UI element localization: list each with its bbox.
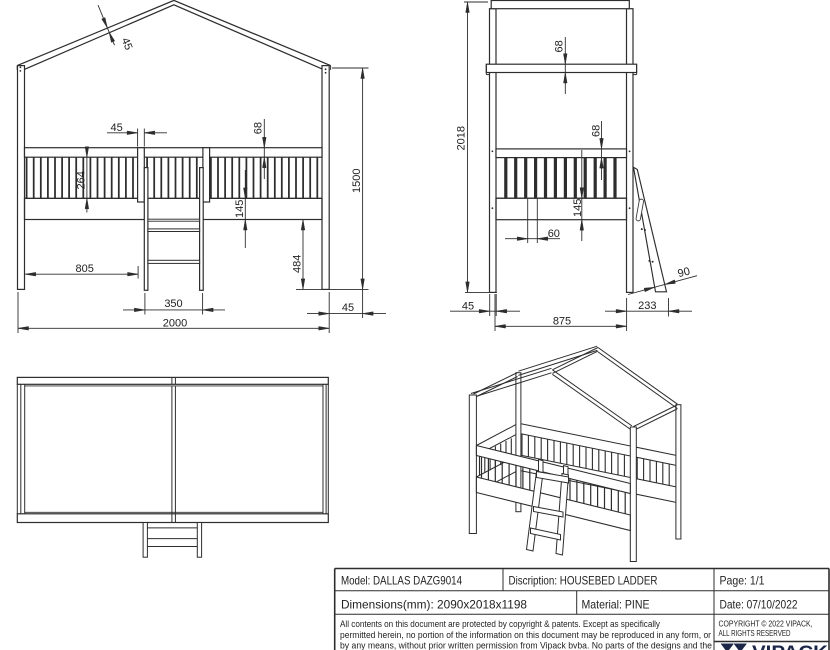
svg-text:VIPACK: VIPACK: [752, 643, 828, 650]
svg-text:45: 45: [462, 301, 474, 313]
svg-text:45: 45: [111, 122, 123, 134]
svg-text:1500: 1500: [351, 169, 363, 193]
svg-text:805: 805: [76, 263, 94, 275]
svg-text:by any means, without prior wr: by any means, without prior written perm…: [340, 640, 712, 650]
svg-text:Date: 07/10/2022: Date: 07/10/2022: [720, 598, 798, 612]
svg-text:All contents on this document: All contents on this document are protec…: [340, 619, 660, 629]
svg-text:Discription: HOUSEBED LADDER: Discription: HOUSEBED LADDER: [509, 574, 658, 588]
svg-text:145: 145: [234, 200, 246, 218]
svg-text:COPYRIGHT © 2022 VIPACK,: COPYRIGHT © 2022 VIPACK,: [719, 619, 813, 628]
svg-text:60: 60: [548, 228, 560, 240]
svg-text:68: 68: [554, 40, 566, 52]
svg-text:Model: DALLAS DAZG9014: Model: DALLAS DAZG9014: [341, 574, 462, 588]
svg-text:68: 68: [253, 122, 265, 134]
svg-text:875: 875: [553, 315, 571, 327]
svg-text:2018: 2018: [455, 126, 467, 150]
svg-text:484: 484: [291, 255, 303, 273]
svg-text:233: 233: [638, 300, 656, 312]
svg-text:145: 145: [572, 199, 584, 217]
svg-text:264: 264: [75, 171, 87, 189]
svg-text:350: 350: [164, 298, 182, 310]
svg-text:2000: 2000: [163, 317, 187, 329]
svg-text:permitted herein, no portion o: permitted herein, no portion of the info…: [340, 630, 711, 640]
svg-text:45: 45: [342, 302, 354, 314]
svg-text:Page: 1/1: Page: 1/1: [720, 574, 765, 588]
svg-text:ALL RIGHTS RESERVED: ALL RIGHTS RESERVED: [719, 629, 791, 638]
svg-text:Material: PINE: Material: PINE: [582, 598, 650, 612]
svg-text:Dimensions(mm): 2090x2018x1198: Dimensions(mm): 2090x2018x1198: [341, 598, 527, 612]
svg-text:68: 68: [591, 125, 603, 137]
